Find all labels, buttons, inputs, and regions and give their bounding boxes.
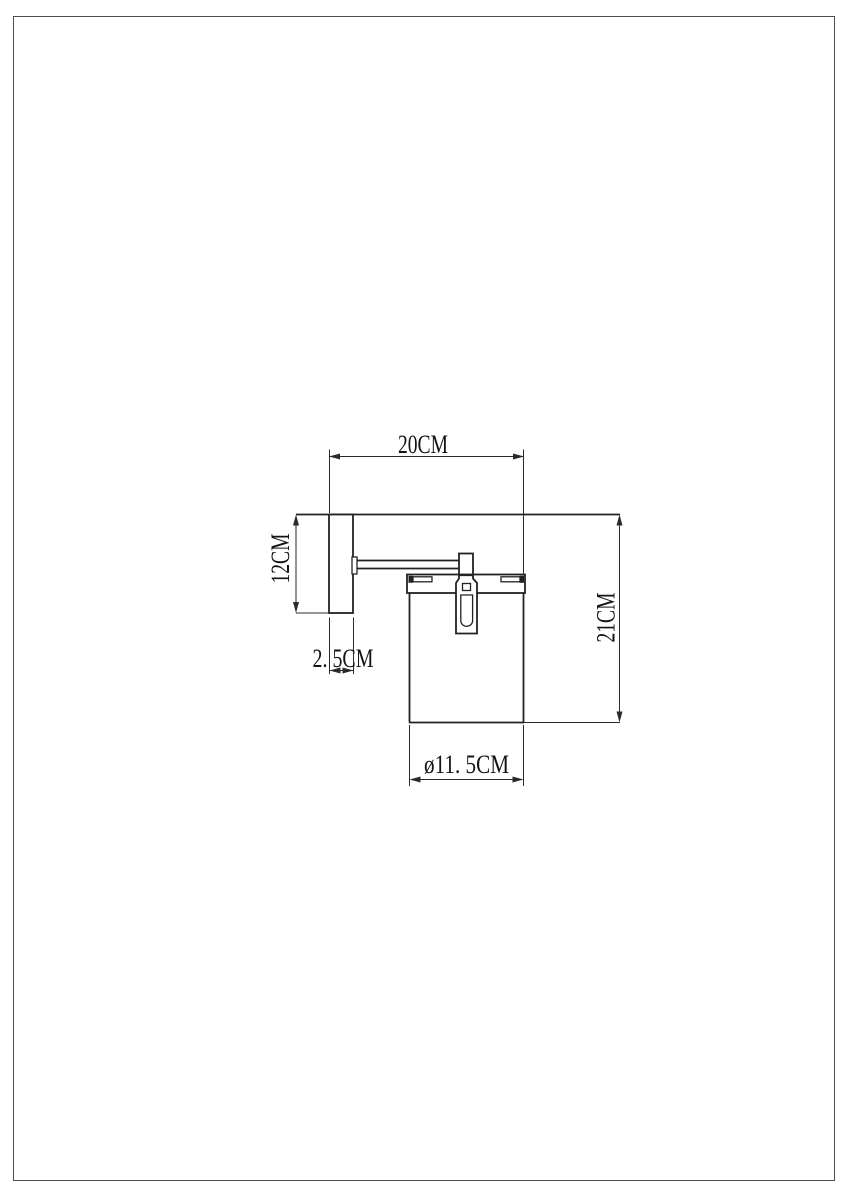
- arrow-down-icon: [617, 712, 623, 723]
- arrow-up-icon: [293, 515, 299, 526]
- dim-label-21cm: 21CM: [592, 593, 621, 643]
- arrow-left-icon: [329, 454, 340, 460]
- band-clip-right-bar: [501, 577, 520, 582]
- band-clip-left-block: [409, 576, 414, 583]
- arm-wall-connector: [352, 557, 357, 574]
- band-clip-left-bar: [413, 577, 432, 582]
- arrow-up-icon: [617, 515, 623, 526]
- arrow-down-icon: [293, 602, 299, 613]
- dim-overall-width: 20CM: [329, 430, 524, 574]
- lamp-socket: [456, 575, 477, 633]
- dim-shade-diameter: ø11. 5CM: [410, 725, 524, 786]
- dim-plate-height: 12CM: [266, 515, 329, 614]
- arrow-right-icon: [513, 777, 524, 783]
- mounting-arm: [352, 554, 473, 576]
- technical-drawing: 12CM 20CM 2. 5CM 21CM: [0, 0, 849, 1200]
- dim-plate-depth: 2. 5CM: [313, 618, 374, 675]
- dim-label-2-5cm: 2. 5CM: [313, 644, 374, 673]
- dim-overall-height: 21CM: [592, 515, 623, 723]
- dim-label-20cm: 20CM: [398, 430, 448, 459]
- arrow-left-icon: [410, 777, 421, 783]
- dim-label-12cm: 12CM: [266, 534, 295, 584]
- page-border: [14, 17, 835, 1181]
- dim-label-diameter: ø11. 5CM: [424, 750, 509, 779]
- arrow-right-icon: [513, 454, 524, 460]
- drawing-page: 12CM 20CM 2. 5CM 21CM: [0, 0, 849, 1200]
- wall-plate: [329, 515, 353, 614]
- socket-slot: [461, 595, 473, 626]
- socket-square-hole: [463, 584, 471, 591]
- arm-end-block: [459, 554, 473, 576]
